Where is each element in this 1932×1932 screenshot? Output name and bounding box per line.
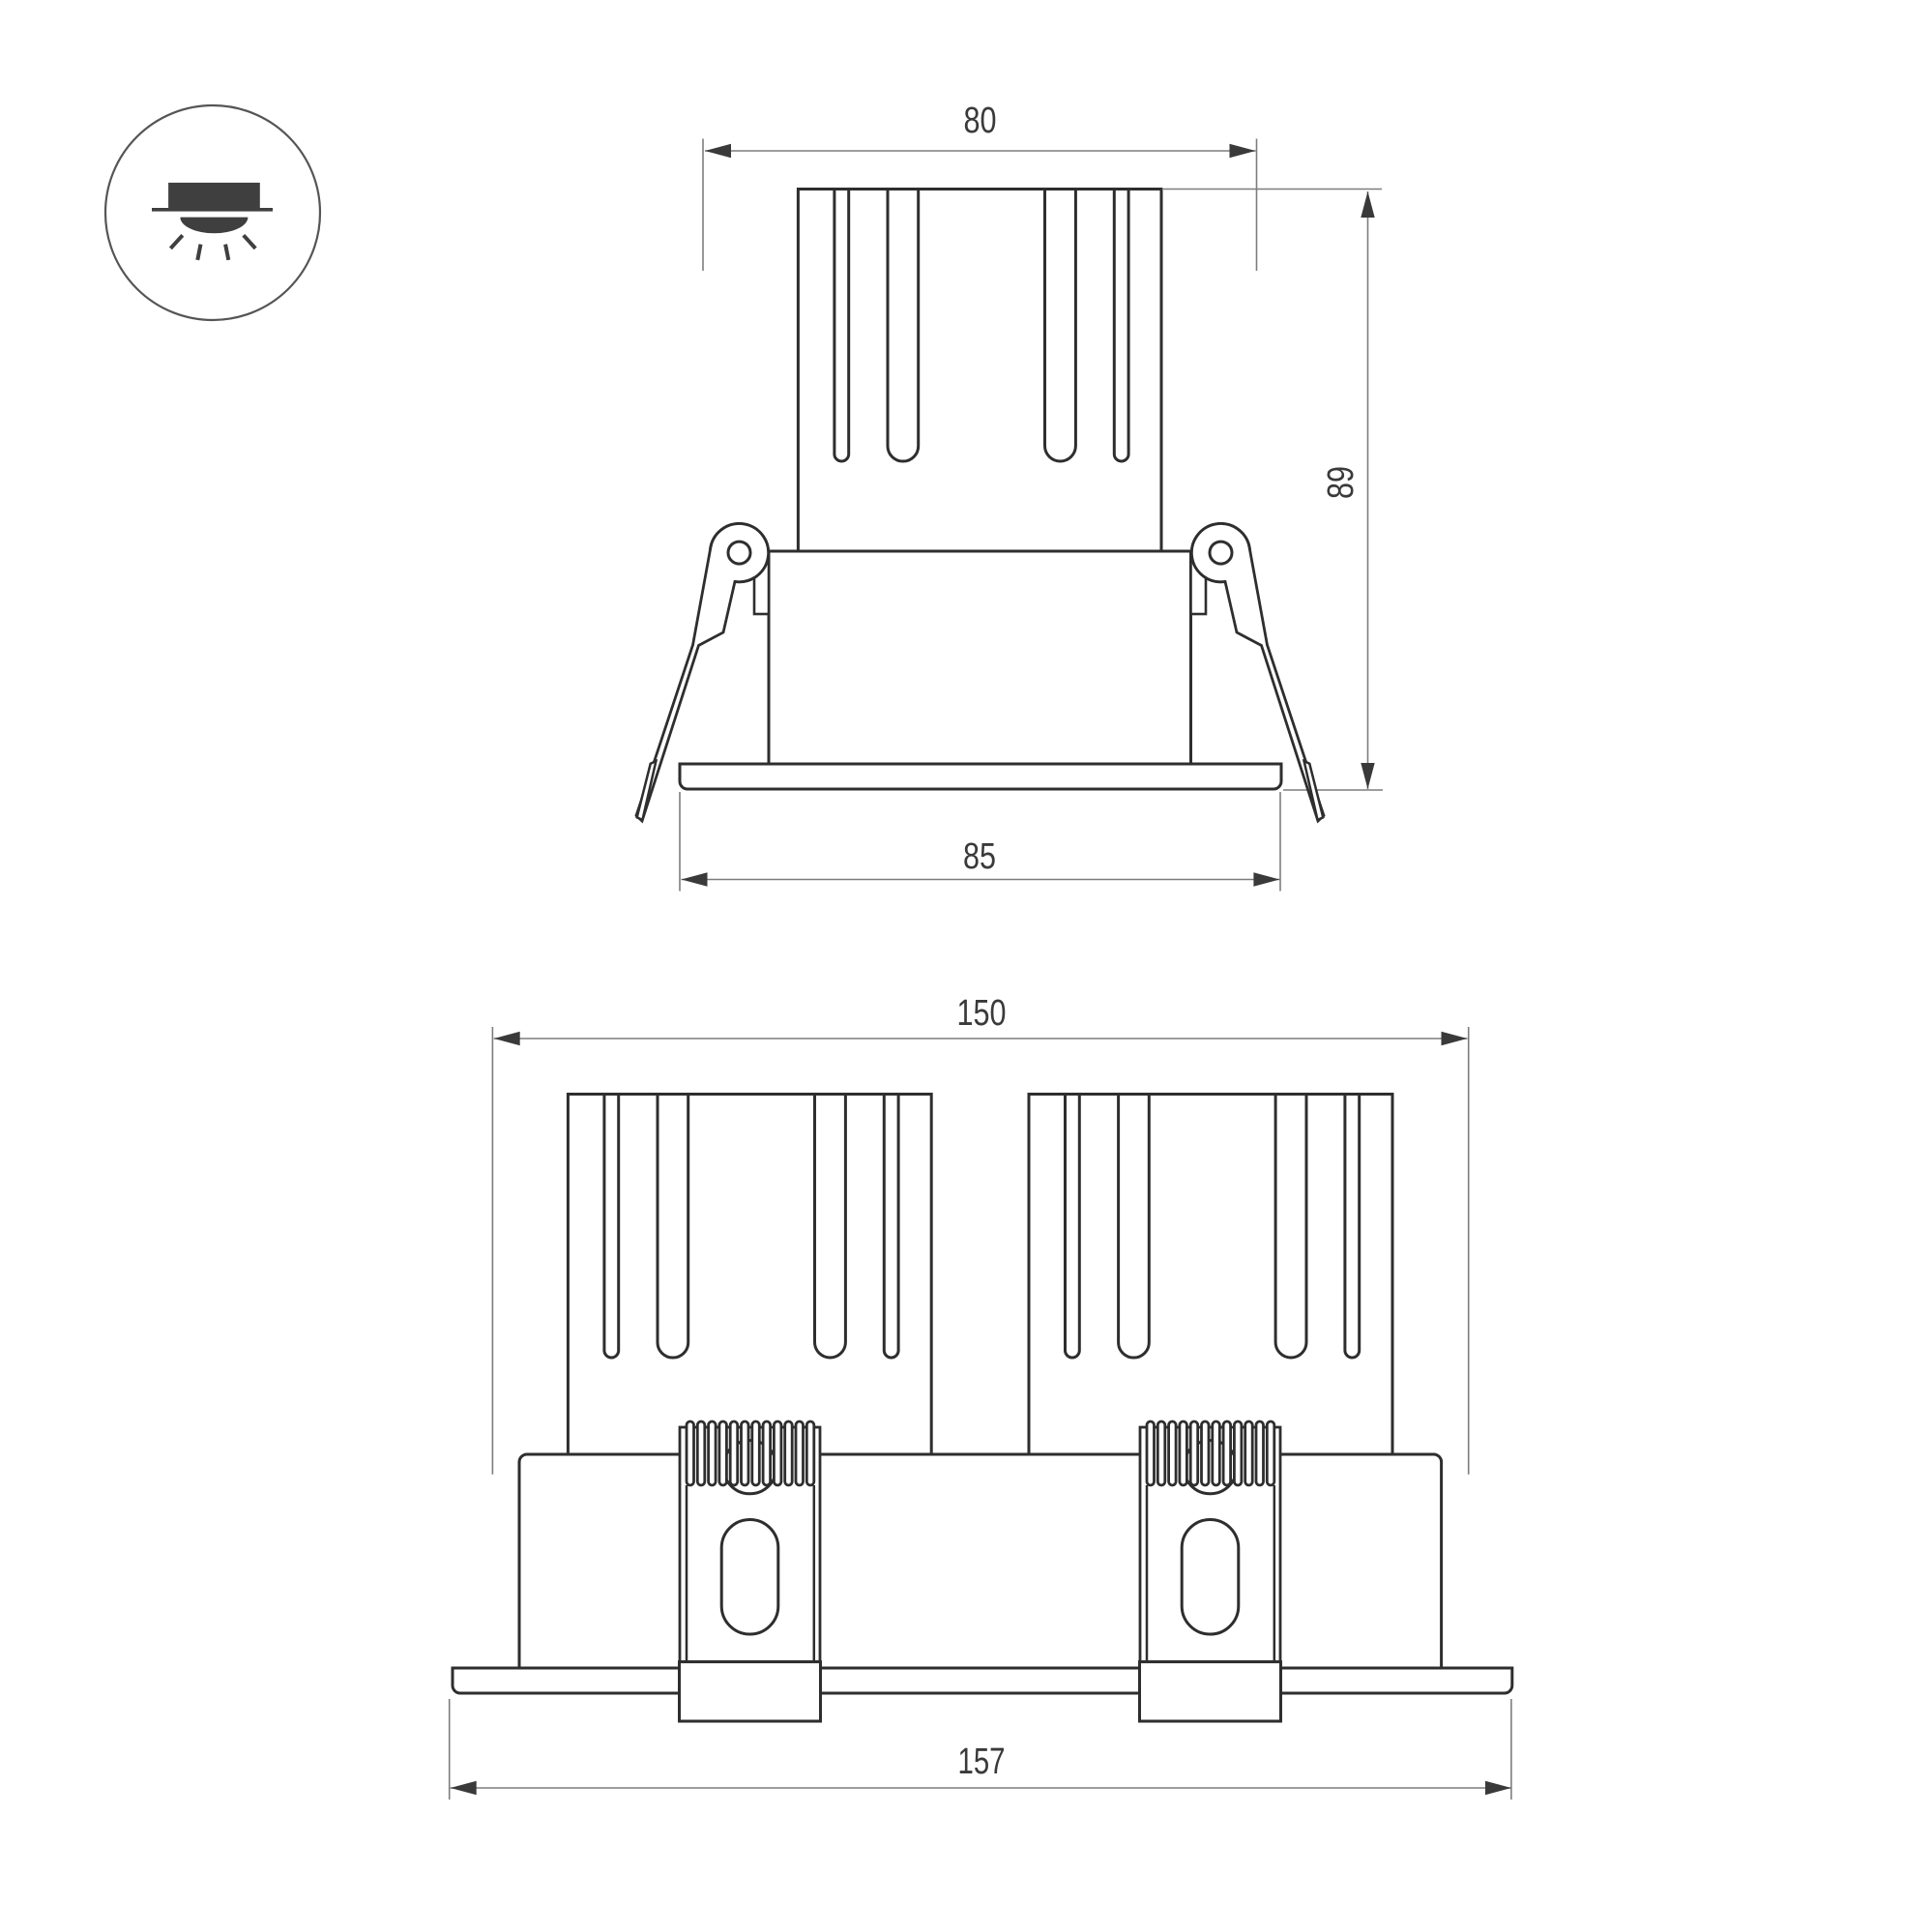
svg-text:85: 85 (963, 836, 996, 877)
svg-text:89: 89 (1321, 466, 1361, 499)
svg-text:80: 80 (964, 101, 997, 141)
svg-text:157: 157 (958, 1742, 1006, 1782)
svg-text:150: 150 (957, 993, 1007, 1034)
